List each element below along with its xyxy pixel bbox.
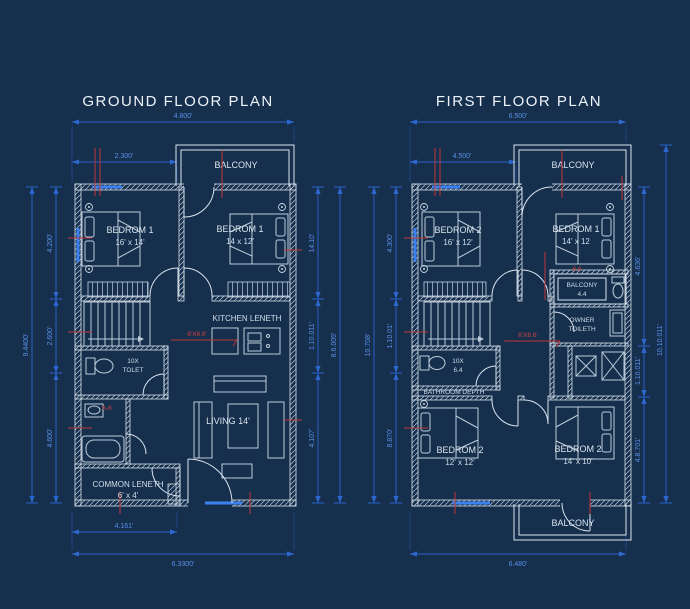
- dim-text: 1.10.01': [387, 324, 394, 349]
- dim-text: 6.480': [509, 561, 528, 568]
- wardrobe-icon: [424, 282, 486, 297]
- dim-text: 8.6.005': [331, 333, 338, 358]
- svg-text:6'X6.6': 6'X6.6': [518, 332, 537, 339]
- room-label: KITCHEN LENETH: [213, 314, 282, 323]
- room-label: BALCONY: [214, 160, 257, 170]
- svg-text:6.6: 6.6: [572, 266, 581, 273]
- dim-text: 4.200': [47, 234, 54, 253]
- dim-text: 4.600': [47, 429, 54, 448]
- room-label: COMMON LENETH: [92, 480, 163, 489]
- room-label: 10X: [452, 358, 464, 365]
- first-title: FIRST FLOOR PLAN: [436, 93, 602, 110]
- dim-text: 9.4400': [23, 334, 30, 357]
- room-label: BEDROM 1: [106, 225, 153, 235]
- room-size-label: 12' x 12': [445, 458, 475, 467]
- dim-text: 4.500': [453, 153, 472, 160]
- room-size-label: 16' x 12': [443, 238, 473, 247]
- svg-text:6'X6.6': 6'X6.6': [187, 331, 206, 338]
- room-label: BATHROOM DEPTH: [424, 389, 485, 396]
- room-label: BEDROM 1: [216, 224, 263, 234]
- room-label: 10X: [127, 358, 139, 365]
- room-label: BALCONY: [551, 160, 594, 170]
- dim-text: 4.161': [115, 523, 134, 530]
- wardrobe-icon: [88, 282, 148, 297]
- room-label: TOLET: [123, 367, 144, 374]
- room-label: BEDROM 2: [554, 444, 601, 454]
- cad-canvas: GROUND FLOOR PLAN FIRST FLOOR PLAN 4.800…: [0, 0, 690, 609]
- room-label: BEDROM 1: [552, 224, 599, 234]
- dim-text: 2.600': [47, 327, 54, 346]
- floor-plan-drawing: GROUND FLOOR PLAN FIRST FLOOR PLAN 4.800…: [0, 0, 690, 609]
- room-size-label: 14' x 12: [562, 237, 590, 246]
- room-size-label: 4.4: [577, 291, 586, 298]
- wardrobe-icon: [228, 282, 290, 297]
- room-size-label: 6' x 4': [118, 491, 139, 500]
- room-label: BALCONY: [551, 518, 594, 528]
- dim-text: 6.3300': [172, 561, 195, 568]
- ground-title: GROUND FLOOR PLAN: [82, 93, 273, 110]
- room-label: LIVING 14': [206, 416, 250, 426]
- dim-text: 8.870': [387, 429, 394, 448]
- dim-text: 4.8.701': [635, 438, 642, 463]
- dim-text: 4.800': [174, 113, 193, 120]
- room-label: BALCONY: [566, 282, 598, 289]
- dim-text: 4.300': [387, 234, 394, 253]
- room-label: OWNER: [570, 317, 595, 324]
- room-label: BEDROM 2: [434, 225, 481, 235]
- room-size-label: 14 x 12': [226, 237, 254, 246]
- dim-text: 4.636': [635, 257, 642, 276]
- room-size-label: 16' x 14': [115, 238, 145, 247]
- room-size-label: 14' x 10': [563, 457, 593, 466]
- dim-text: 1.10.011': [309, 322, 316, 350]
- dim-text: 6.500': [509, 113, 528, 120]
- room-label: BEDROM 2: [436, 445, 483, 455]
- dim-text: 4.107': [309, 429, 316, 448]
- room-size-label: 6.4: [453, 367, 462, 374]
- dim-text: 2.300': [115, 153, 134, 160]
- dim-text: 10.708': [365, 334, 372, 357]
- dim-text: 14.10': [309, 234, 316, 253]
- svg-text:6-6: 6-6: [102, 405, 112, 412]
- dim-text: 1.10.011': [635, 357, 642, 385]
- room-label: TOILETH: [568, 326, 596, 333]
- dim-text: 10.10.011': [657, 324, 664, 356]
